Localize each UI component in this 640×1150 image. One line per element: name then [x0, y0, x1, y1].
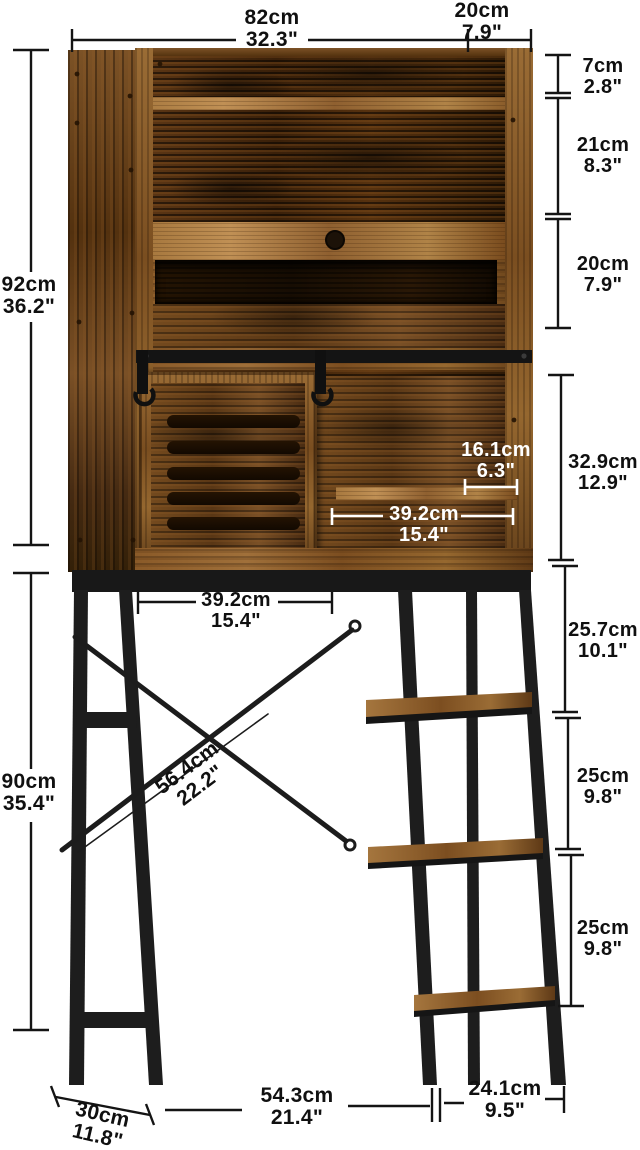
dim-inch: 9.5" [455, 1100, 555, 1122]
dim-cm: 7cm [562, 56, 640, 77]
dim-cm: 20cm [562, 254, 640, 275]
dim-inch: 32.3" [227, 29, 317, 51]
left-inner-leg [119, 590, 163, 1085]
dim-cm: 39.2cm [372, 504, 476, 525]
ladder-shelves [366, 692, 555, 1017]
drop-door-rail [153, 222, 505, 260]
dim-top-width: 82cm 32.3" [227, 7, 317, 51]
ladder-middle-leg [466, 590, 480, 1085]
dim-right-25cm-upper: 25cm 9.8" [562, 766, 640, 808]
left-leg-rung [72, 1012, 153, 1028]
dim-right-25cm-lower: 25cm 9.8" [562, 918, 640, 960]
cabinet-bottom-board [135, 548, 533, 572]
louver-slat [167, 492, 300, 505]
dim-inch: 15.4" [372, 525, 476, 546]
upper-door-panel [153, 110, 505, 222]
dim-base-left-54-3cm: 54.3cm 21.4" [247, 1085, 347, 1129]
dim-diagonal-56-4cm: 56.4cm 22.2" [121, 714, 267, 839]
louver-slat [167, 415, 300, 428]
louver-slat [167, 467, 300, 480]
ladder-front-leg [398, 590, 437, 1085]
mid-band [153, 304, 505, 348]
louver-slat [167, 517, 300, 530]
dim-right-7cm: 7cm 2.8" [562, 56, 640, 98]
dim-left-90cm: 90cm 35.4" [0, 771, 58, 815]
dim-inch: 10.1" [562, 641, 640, 662]
dim-inch: 15.4" [186, 611, 286, 632]
dim-top-depth: 20cm 7.9" [437, 0, 527, 44]
dim-inch: 12.9" [562, 473, 640, 494]
cabinet-side-panel [68, 50, 136, 572]
left-leg-rung [76, 712, 137, 728]
dim-right-20cm: 20cm 7.9" [562, 254, 640, 296]
dim-right-21cm: 21cm 8.3" [562, 135, 640, 177]
dim-inch: 9.8" [562, 787, 640, 808]
dim-cm: 90cm [0, 771, 58, 793]
dim-cm: 25cm [562, 766, 640, 787]
ladder-shelf-top [366, 692, 532, 717]
dim-cm: 21cm [562, 135, 640, 156]
dim-cm: 39.2cm [186, 590, 286, 611]
dim-cm: 20cm [437, 0, 527, 22]
dim-inch: 2.8" [562, 77, 640, 98]
dim-right-25-7cm: 25.7cm 10.1" [562, 620, 640, 662]
dim-inch: 21.4" [247, 1107, 347, 1129]
dim-inch: 7.9" [562, 275, 640, 296]
top-open-shelf-back [153, 56, 505, 98]
louver-slat [167, 441, 300, 454]
dim-inch: 8.3" [562, 156, 640, 177]
dim-base-depth-30cm: 30cm 11.8" [53, 1095, 147, 1150]
ladder-shelf-bottom [414, 986, 555, 1011]
dim-inch: 9.8" [562, 939, 640, 960]
dim-left-92cm: 92cm 36.2" [0, 274, 58, 318]
dim-frame-width-39-2cm: 39.2cm 15.4" [186, 590, 286, 632]
left-outer-leg [69, 590, 88, 1085]
compartment-shelf-board [336, 487, 517, 500]
ladder-right-leg [519, 590, 566, 1085]
dim-inner-width-39-2cm: 39.2cm 15.4" [372, 504, 476, 546]
dim-cm: 25.7cm [562, 620, 640, 641]
dim-base-right-24-1cm: 24.1cm 9.5" [455, 1078, 555, 1122]
dim-cm: 82cm [227, 7, 317, 29]
dim-inch: 35.4" [0, 793, 58, 815]
dim-cm: 24.1cm [455, 1078, 555, 1100]
dimension-diagram: 82cm 32.3" 20cm 7.9" 7cm 2.8" 21cm 8.3" … [0, 0, 640, 1150]
dim-cm: 54.3cm [247, 1085, 347, 1107]
dim-inner-shelf-16-1cm: 16.1cm 6.3" [452, 440, 540, 482]
dim-cm: 92cm [0, 274, 58, 296]
dim-cm: 16.1cm [452, 440, 540, 461]
dim-inch: 36.2" [0, 296, 58, 318]
dim-inch: 6.3" [452, 461, 540, 482]
cabinet-top-edge [135, 48, 533, 56]
dim-cm: 25cm [562, 918, 640, 939]
dim-cm: 32.9cm [562, 452, 640, 473]
dim-right-32-9cm: 32.9cm 12.9" [562, 452, 640, 494]
dim-inch: 7.9" [437, 22, 527, 44]
frame-top-rail [72, 570, 531, 592]
open-compartment [155, 260, 497, 304]
top-shelf-board [136, 97, 533, 110]
ladder-shelf-middle [368, 838, 543, 863]
